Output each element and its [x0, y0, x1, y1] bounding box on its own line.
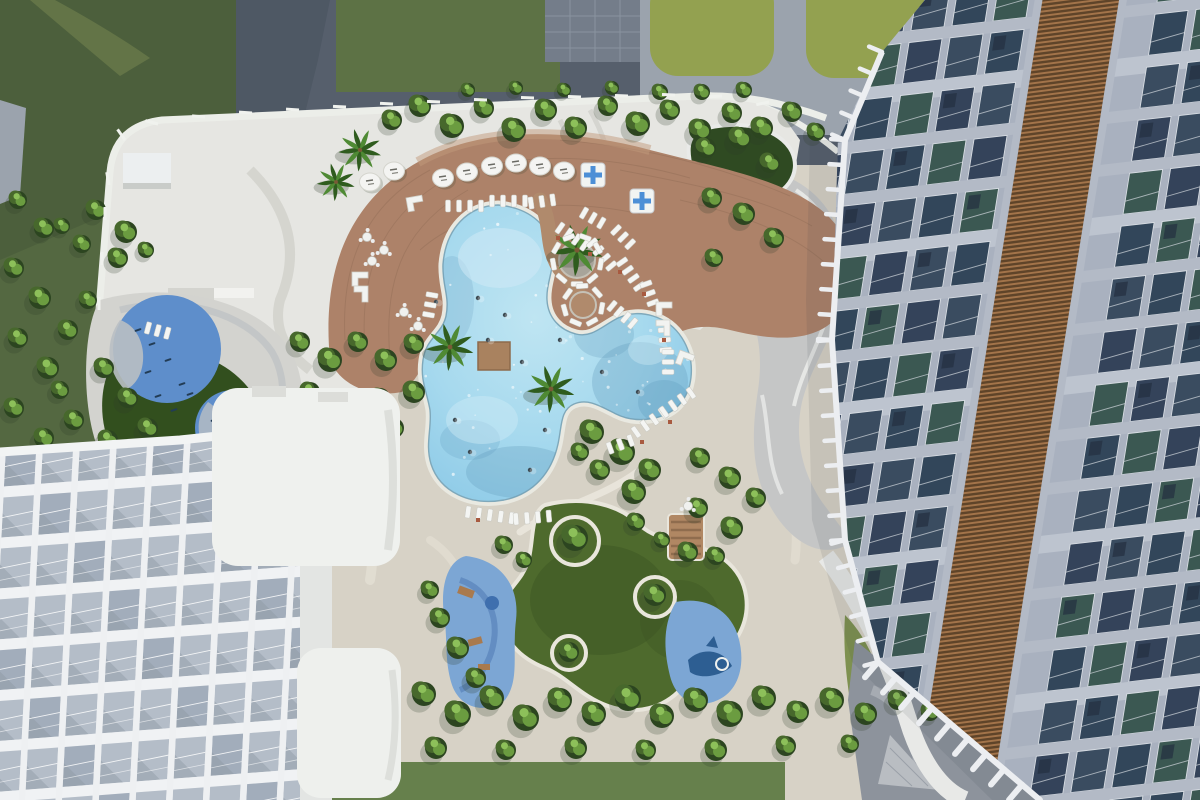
window-cell [860, 304, 900, 349]
window-cell [1139, 324, 1179, 369]
balcony-fin [826, 214, 840, 215]
sun-lounger [468, 200, 473, 212]
sun-lounger [457, 200, 462, 212]
balcony-cell [65, 694, 98, 736]
balcony-cell [68, 643, 101, 685]
window-cell [943, 34, 983, 79]
balcony-fin [818, 340, 832, 341]
towel-dot [642, 292, 646, 296]
towel-dot [588, 252, 592, 256]
balcony-cell [26, 747, 59, 789]
towel-dot [640, 440, 644, 444]
balcony-cell [147, 535, 180, 577]
window-cell [1072, 487, 1112, 532]
balcony-fin [826, 465, 840, 466]
balcony-cell [33, 594, 66, 636]
balcony-cell [142, 637, 175, 679]
balcony-cell [107, 589, 140, 631]
balcony-cell [28, 696, 61, 738]
parking-tick [615, 94, 628, 97]
window-cell [876, 458, 916, 503]
parking-tick [474, 98, 487, 101]
balcony-cell [137, 739, 170, 781]
balcony-fin [821, 390, 835, 391]
sun-lounger [662, 360, 674, 365]
window-cell [1153, 738, 1193, 783]
sun-lounger [512, 195, 517, 207]
towel-dot [662, 338, 666, 342]
balcony-cell [0, 546, 31, 588]
balcony-fin [825, 239, 839, 240]
window-cell [935, 87, 975, 132]
window-cell [910, 246, 950, 291]
balcony-cell [253, 629, 286, 671]
balcony-cell [0, 597, 29, 639]
balcony-cell [216, 632, 249, 674]
sun-lounger [501, 195, 506, 207]
window-cell [927, 140, 967, 185]
window-cell [1038, 699, 1078, 744]
balcony-fin [825, 440, 839, 441]
window-cell [1098, 328, 1138, 373]
towel-dot [556, 236, 560, 240]
window-cell [908, 506, 948, 551]
balcony-cell [38, 492, 71, 534]
window-cell [900, 559, 940, 604]
balcony-cell [63, 745, 96, 787]
balcony-cell [139, 688, 172, 730]
window-cell [1115, 222, 1155, 267]
window-cell [886, 145, 926, 190]
window-cell [894, 92, 934, 137]
balcony-cell [248, 731, 281, 773]
sun-lounger [513, 513, 519, 525]
window-cell [1123, 169, 1163, 214]
window-cell [852, 357, 892, 402]
balcony-cell [181, 583, 214, 625]
balcony-cell [102, 691, 135, 733]
towel-dot [476, 518, 480, 522]
window-cell [901, 299, 941, 344]
balcony-fin [829, 164, 843, 165]
sun-lounger [576, 283, 588, 289]
sun-lounger [546, 510, 552, 522]
balcony-cell [176, 685, 209, 727]
window-cell [891, 612, 931, 657]
balcony-cell [0, 648, 26, 690]
pool-wood-platform [478, 342, 510, 370]
balcony-fin [823, 415, 837, 416]
window-cell [1047, 646, 1087, 691]
balcony-cell [245, 782, 278, 800]
parking-tick [662, 93, 675, 96]
window-cell [893, 352, 933, 397]
window-cell [843, 410, 883, 455]
parking-tick [101, 252, 104, 265]
window-cell [1146, 531, 1186, 576]
window-cell [1129, 637, 1169, 682]
pool-lounger-pad [570, 292, 596, 318]
sun-lounger [490, 195, 495, 207]
sun-lounger [479, 200, 484, 212]
window-cell [984, 29, 1024, 74]
window-cell [968, 135, 1008, 180]
window-cell [1120, 690, 1160, 735]
window-cell [1096, 589, 1136, 634]
balcony-cell [73, 541, 106, 583]
balcony-cell [105, 640, 138, 682]
window-cell [1081, 434, 1121, 479]
window-cell [1161, 685, 1200, 730]
screenshot-root [0, 0, 1200, 800]
balcony-fin [828, 189, 842, 190]
window-cell [1112, 743, 1152, 788]
parking-tick [98, 297, 101, 310]
cabana-daybed [581, 163, 605, 187]
window-cell [1148, 10, 1188, 55]
window-cell [918, 193, 958, 238]
aerial-render-canvas [0, 0, 1200, 800]
parking-tick [568, 95, 581, 98]
window-cell [1137, 584, 1177, 629]
window-cell [1154, 478, 1194, 523]
window-cell [884, 405, 924, 450]
parking-tick [104, 207, 107, 220]
window-cell [867, 511, 907, 556]
window-cell [959, 188, 999, 233]
balcony-cell [0, 699, 24, 741]
window-cell [951, 241, 991, 286]
window-cell [1130, 377, 1170, 422]
balcony-cell [144, 586, 177, 628]
window-cell [902, 39, 942, 84]
balcony-cell [100, 742, 132, 784]
balcony-cell [31, 645, 64, 687]
balcony-fin [820, 314, 834, 315]
towel-dot [668, 420, 672, 424]
balcony-cell [211, 734, 244, 776]
window-cell [934, 347, 974, 392]
balcony-fin [823, 264, 837, 265]
window-cell [1132, 116, 1172, 161]
balcony-cell [1, 495, 34, 537]
window-cell [942, 294, 982, 339]
window-cell [877, 198, 917, 243]
window-cell [1156, 218, 1196, 263]
balcony-fin [821, 289, 835, 290]
window-cell [976, 82, 1016, 127]
window-cell [917, 453, 957, 498]
sun-lounger [535, 511, 541, 523]
window-cell [1105, 536, 1145, 581]
balcony-cell [184, 532, 217, 574]
window-cell [1140, 63, 1180, 108]
sun-lounger [523, 195, 528, 207]
window-cell [1030, 752, 1070, 797]
sun-lounger [662, 370, 674, 375]
window-cell [1064, 540, 1104, 585]
balcony-cell [179, 634, 212, 676]
gate-booth [123, 153, 171, 187]
balcony-cell [112, 487, 144, 529]
cabana-daybed [630, 189, 654, 213]
window-cell [1113, 483, 1153, 528]
balcony-cell [70, 592, 103, 634]
balcony-cell [0, 750, 21, 792]
window-cell [1089, 381, 1129, 426]
balcony-cell [75, 490, 108, 532]
balcony-fin [828, 490, 842, 491]
window-cell [1071, 748, 1111, 793]
sun-lounger [524, 512, 530, 524]
balcony-cell [174, 736, 207, 778]
sun-lounger [446, 200, 451, 212]
balcony-cell [255, 578, 287, 620]
parking-tick [521, 96, 534, 99]
sun-lounger [662, 350, 674, 355]
window-cell [869, 251, 909, 296]
balcony-cell [36, 543, 69, 585]
window-cell [1122, 430, 1162, 475]
window-cell [1055, 593, 1095, 638]
balcony-fin [820, 365, 834, 366]
window-cell [845, 149, 885, 194]
lower-roof [297, 648, 401, 798]
balcony-cell [218, 581, 251, 623]
window-cell [1088, 642, 1128, 687]
window-cell [925, 400, 965, 445]
balcony-cell [250, 680, 283, 722]
balcony-cell [208, 785, 241, 800]
balcony-cell [213, 683, 246, 725]
window-cell [1106, 275, 1146, 320]
balcony-cell [149, 484, 182, 526]
towel-dot [618, 270, 622, 274]
balcony-fin [831, 139, 845, 140]
tower-roof [212, 386, 400, 566]
balcony-fin [829, 515, 843, 516]
balcony-cell [110, 538, 143, 580]
window-cell [1079, 695, 1119, 740]
window-cell [1147, 271, 1187, 316]
